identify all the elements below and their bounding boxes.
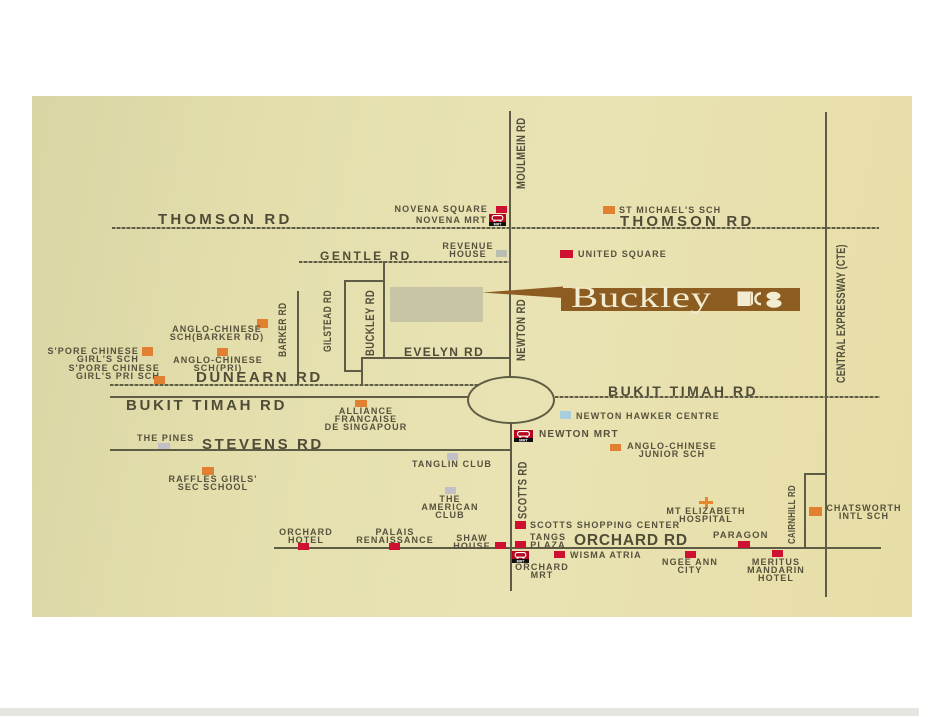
svg-text:MRT: MRT — [494, 222, 503, 226]
svg-text:MRT: MRT — [519, 438, 528, 442]
